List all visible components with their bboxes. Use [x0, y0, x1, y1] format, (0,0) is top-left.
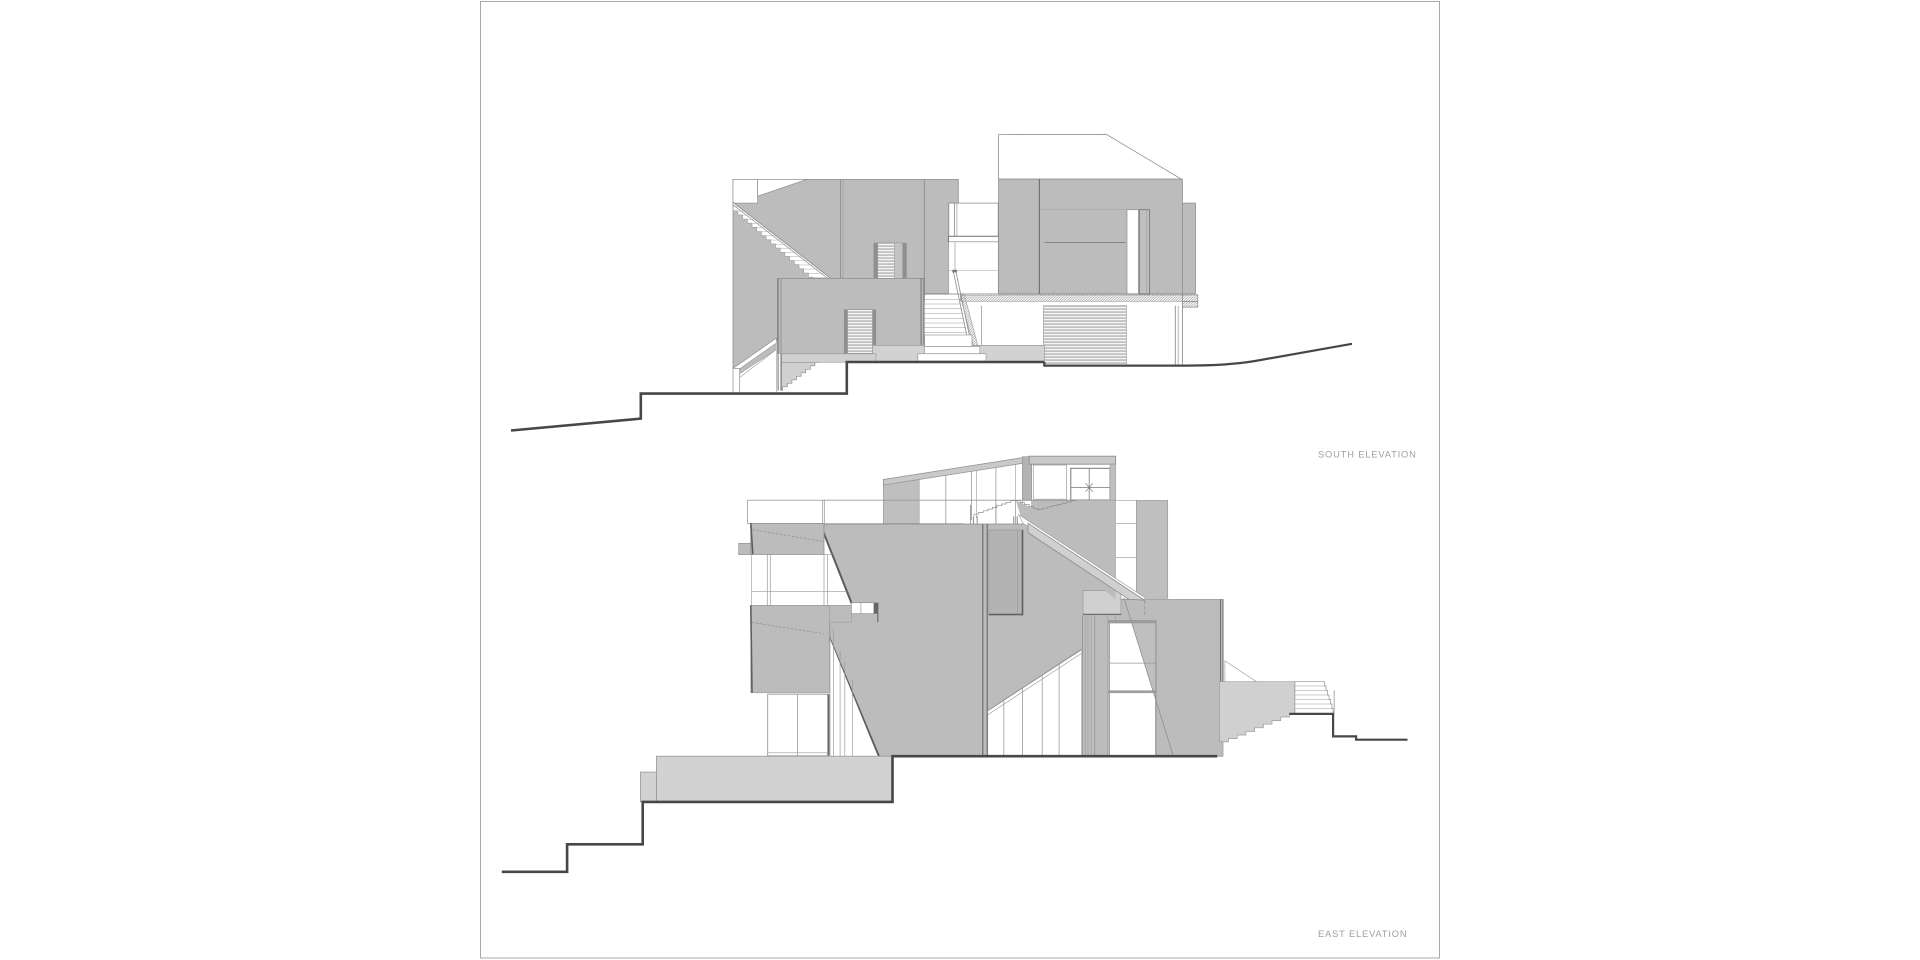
svg-text:SOUTH ELEVATION: SOUTH ELEVATION [1318, 450, 1417, 460]
svg-text:EAST ELEVATION: EAST ELEVATION [1318, 929, 1407, 939]
